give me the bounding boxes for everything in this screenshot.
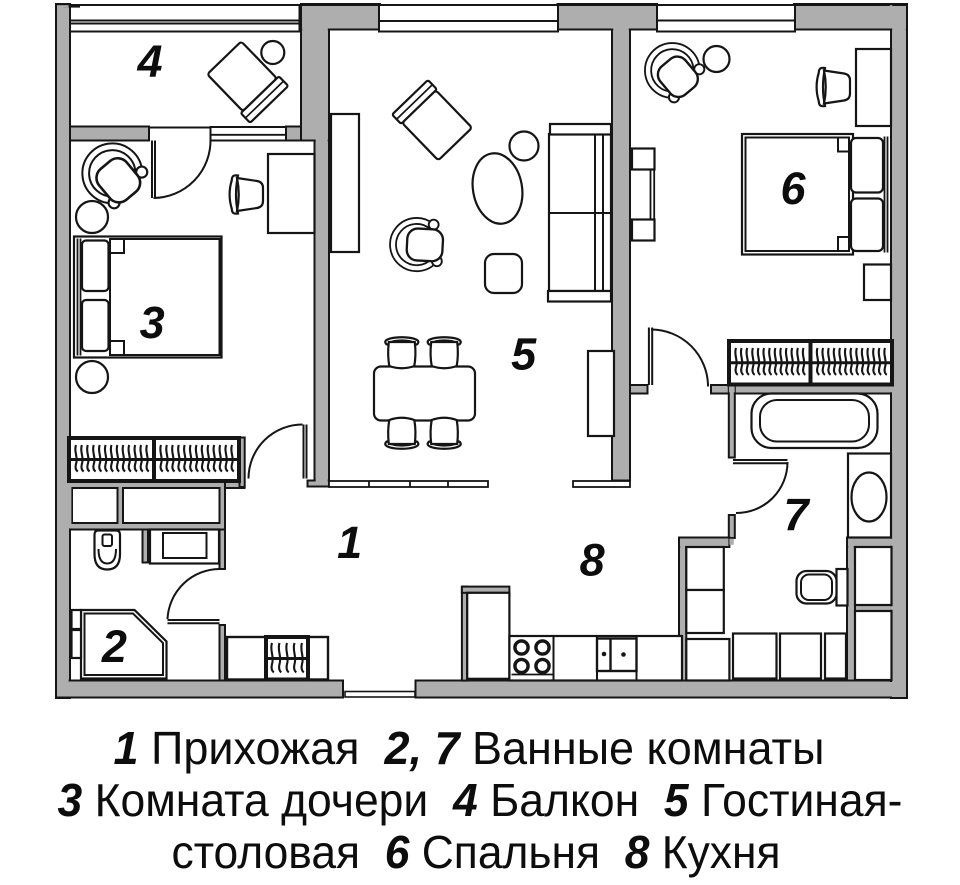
- svg-text:5: 5: [511, 329, 537, 380]
- svg-text:столовая 6 Спальня 8 Кухня: столовая 6 Спальня 8 Кухня: [172, 826, 781, 878]
- svg-text:6: 6: [780, 163, 806, 214]
- svg-text:2: 2: [101, 621, 127, 672]
- svg-text:1 Прихожая 2, 7 Ванные комнат: 1 Прихожая 2, 7 Ванные комнаты: [114, 722, 825, 774]
- svg-text:7: 7: [783, 489, 810, 540]
- svg-text:4: 4: [136, 36, 162, 87]
- svg-text:3 Комната дочери 4 Балкон 5: 3 Комната дочери 4 Балкон 5 Гостиная-: [58, 774, 903, 826]
- svg-text:1: 1: [337, 517, 362, 568]
- svg-text:8: 8: [580, 535, 605, 586]
- svg-text:3: 3: [140, 297, 165, 348]
